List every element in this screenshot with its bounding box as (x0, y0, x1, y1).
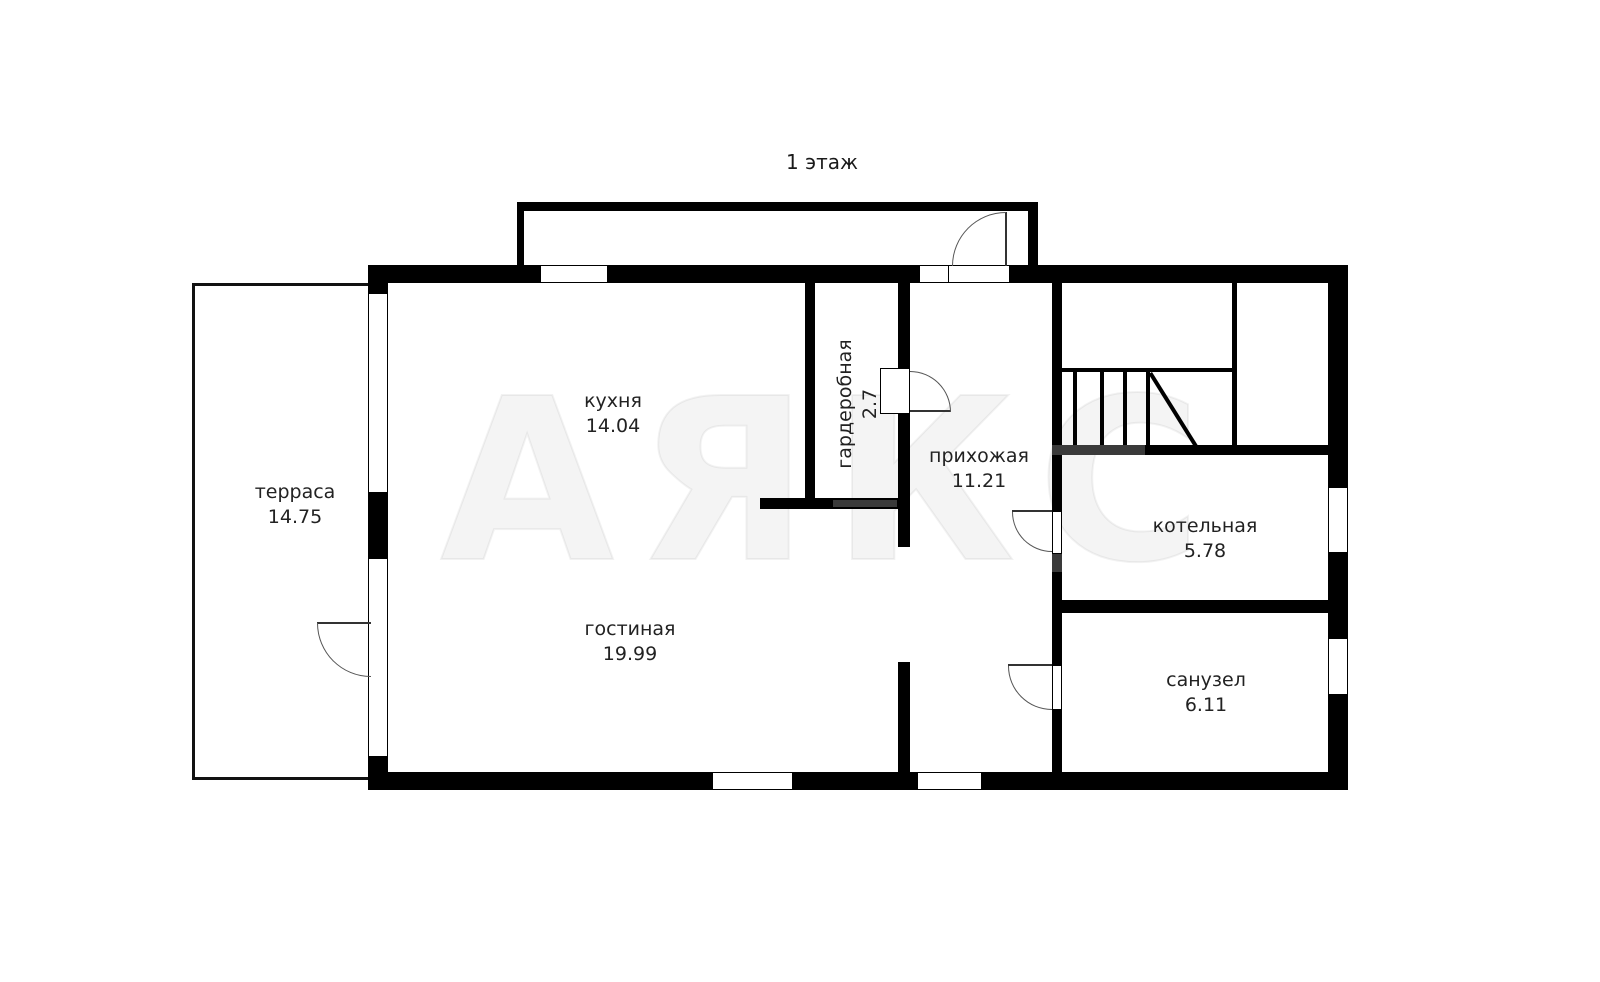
stairs-tread (1073, 372, 1077, 448)
room-area: 11.21 (929, 469, 1029, 494)
entrance-opening-divider (948, 265, 949, 283)
window-right-bathroom (1328, 638, 1348, 695)
wall-bathroom-left-lower (1052, 710, 1062, 772)
stairs-side-divider (1232, 283, 1237, 448)
room-label-wardrobe: гардеробная 2.7 (833, 339, 883, 468)
window-bottom-living (712, 772, 793, 790)
wall-wardrobe-left (805, 283, 815, 508)
room-name: гардеробная (833, 339, 858, 468)
entrance-opening (919, 265, 1010, 283)
room-label-kitchen: кухня 14.04 (584, 389, 642, 439)
room-area: 2.7 (858, 339, 883, 468)
room-area: 14.75 (255, 505, 336, 530)
room-name: гостиная (585, 617, 676, 642)
wall-bathroom-left-upper (1052, 613, 1062, 665)
wall-kitchen-living-divider-gray (833, 500, 897, 507)
door-opening-bathroom (1052, 665, 1062, 710)
door-opening-wardrobe (880, 368, 910, 414)
room-label-bathroom: санузел 6.11 (1166, 668, 1246, 718)
room-label-terrace: терраса 14.75 (255, 480, 336, 530)
floor-title: 1 этаж (786, 150, 858, 175)
wall-wardrobe-right-upper (898, 283, 910, 370)
wall-bathroom-top (1052, 600, 1348, 613)
room-name: котельная (1153, 514, 1258, 539)
stairs-tread (1100, 372, 1104, 448)
room-name: санузел (1166, 668, 1246, 693)
floor-plan: АЯКС 1 этаж (0, 0, 1600, 982)
wall-boiler-left-gray (1052, 554, 1062, 572)
window-right-boiler (1328, 487, 1348, 553)
door-arc-bathroom (1008, 666, 1052, 710)
window-bottom-hallway (917, 772, 982, 790)
room-area: 19.99 (585, 642, 676, 667)
window-left-kitchen (368, 293, 388, 493)
room-area: 5.78 (1153, 539, 1258, 564)
wall-exterior-bottom (368, 772, 1348, 790)
room-label-boiler: котельная 5.78 (1153, 514, 1258, 564)
room-name: прихожая (929, 444, 1029, 469)
window-left-living (368, 558, 388, 757)
room-area: 6.11 (1166, 693, 1246, 718)
wall-hallway-stairs (1052, 283, 1062, 445)
stairs-tread (1123, 372, 1127, 448)
window-top-kitchen (540, 265, 608, 283)
door-opening-boiler (1052, 511, 1062, 554)
wall-wardrobe-right-lower (898, 413, 910, 547)
wall-boiler-left-upper (1052, 455, 1062, 511)
room-label-hallway: прихожая 11.21 (929, 444, 1029, 494)
wall-living-hallway-lower (898, 662, 910, 772)
room-area: 14.04 (584, 414, 642, 439)
wall-boiler-left-lower (1052, 572, 1062, 600)
room-label-living: гостиная 19.99 (585, 617, 676, 667)
terrace-outline (192, 283, 371, 780)
wall-exterior-top (368, 265, 1348, 283)
stairs-tread (1146, 372, 1150, 448)
room-name: терраса (255, 480, 336, 505)
room-name: кухня (584, 389, 642, 414)
stairs-bottom-edge-gray (1052, 445, 1145, 455)
